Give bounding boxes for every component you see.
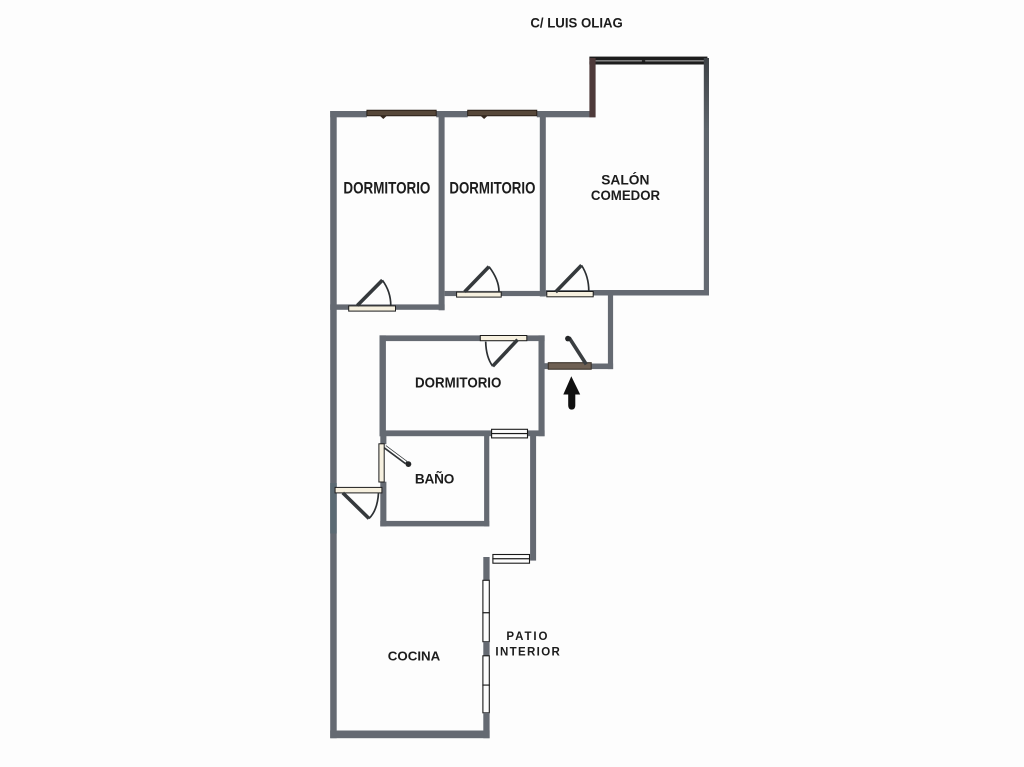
svg-text:PATIO: PATIO: [506, 631, 547, 643]
svg-text:C/ LUIS OLIAG: C/ LUIS OLIAG: [530, 15, 622, 30]
svg-text:COMEDOR: COMEDOR: [591, 188, 660, 203]
svg-text:SALÓN: SALÓN: [601, 171, 649, 188]
svg-text:BAÑO: BAÑO: [415, 472, 454, 487]
svg-text:DORMITORIO: DORMITORIO: [343, 179, 430, 198]
svg-text:DORMITORIO: DORMITORIO: [449, 180, 535, 198]
svg-text:COCINA: COCINA: [388, 649, 441, 664]
svg-text:INTERIOR: INTERIOR: [495, 647, 560, 659]
svg-text:DORMITORIO: DORMITORIO: [415, 374, 501, 391]
